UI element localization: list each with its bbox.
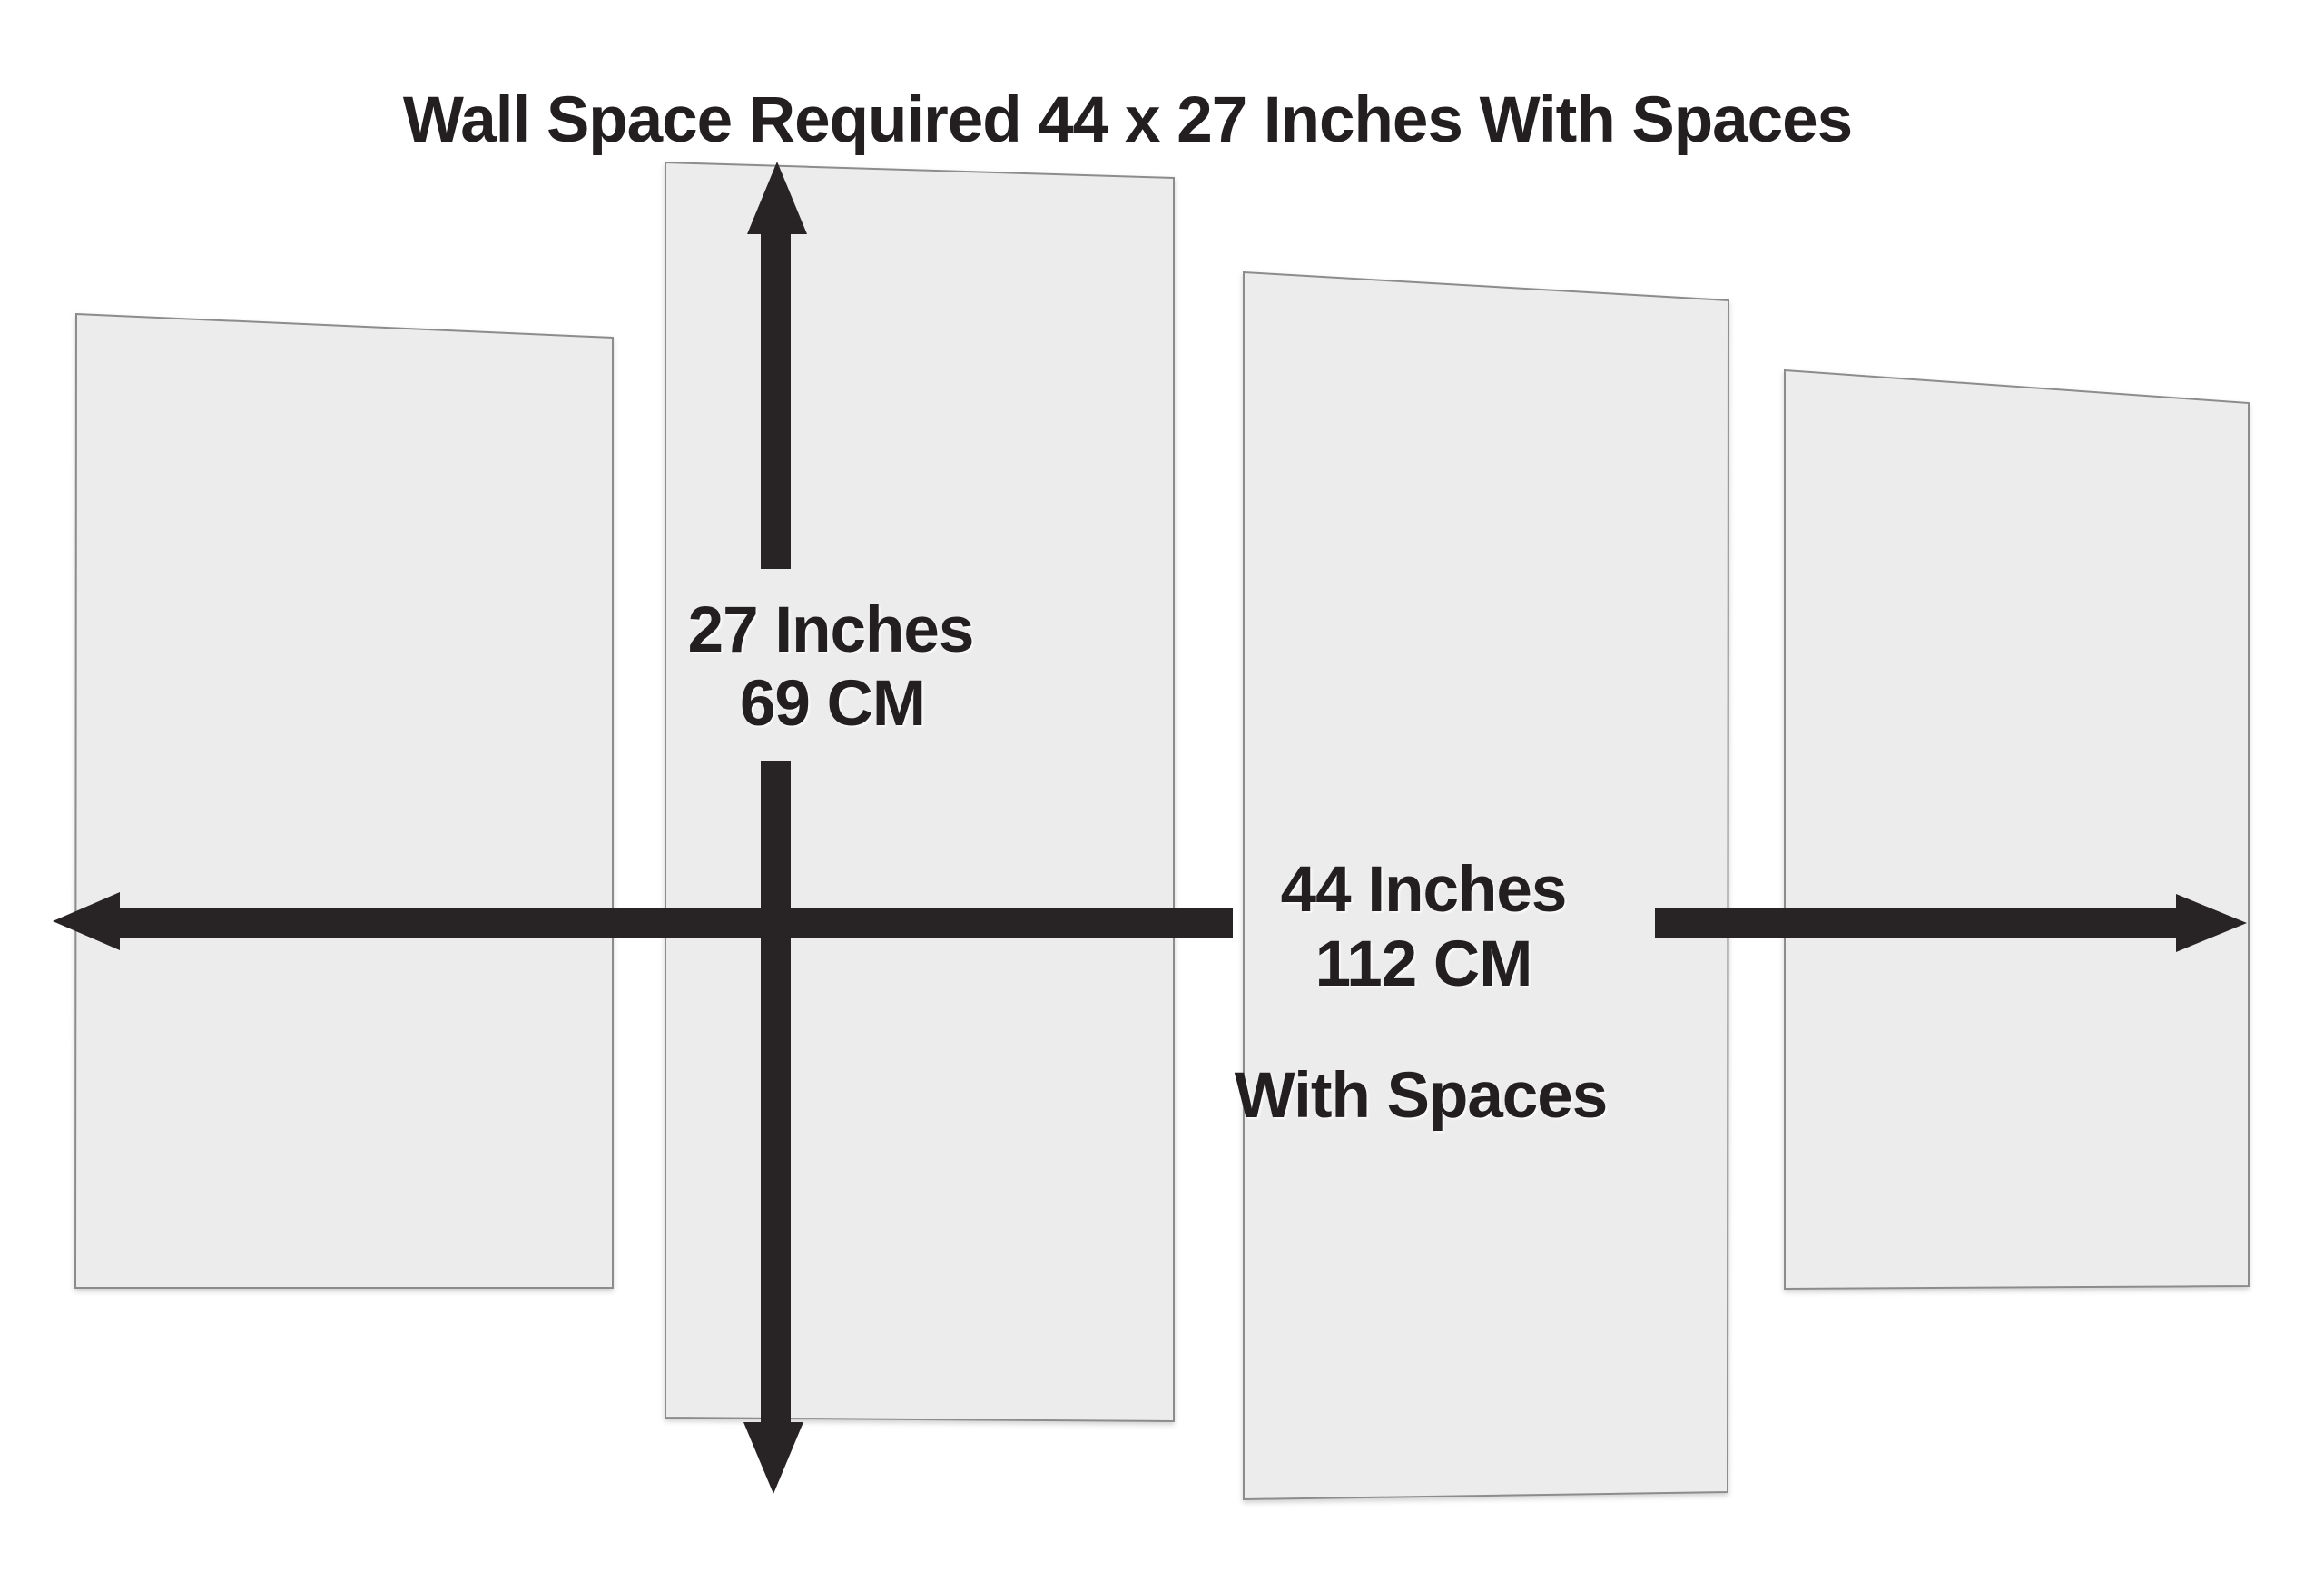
vertical-arrow-upper-shaft: [761, 232, 791, 569]
panel-4: [1785, 370, 2249, 1289]
horizontal-dimension-note: With Spaces: [1235, 1064, 1608, 1128]
horizontal-arrow-right-shaft: [1655, 908, 2178, 938]
vertical-dimension-inches: 27 Inches: [688, 598, 974, 663]
panel-2: [665, 162, 1174, 1421]
horizontal-arrow-left-shaft: [118, 908, 1233, 938]
horizontal-dimension-cm: 112 CM: [1315, 932, 1532, 997]
diagram-title: Wall Space Required 44 x 27 Inches With …: [403, 88, 1852, 152]
diagram-canvas: [0, 0, 2324, 1571]
vertical-arrow-down-head-icon: [743, 1422, 803, 1494]
wall-space-diagram: Wall Space Required 44 x 27 Inches With …: [0, 0, 2324, 1571]
vertical-arrow-lower-shaft: [761, 761, 791, 1425]
horizontal-dimension-inches: 44 Inches: [1281, 858, 1567, 922]
panel-1: [75, 314, 613, 1288]
vertical-dimension-cm: 69 CM: [740, 672, 925, 736]
